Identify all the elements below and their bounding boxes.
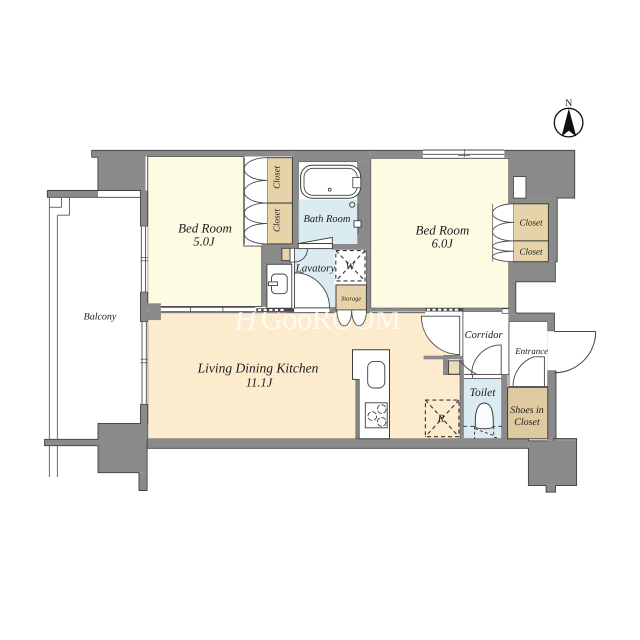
svg-text:Closet: Closet <box>519 218 543 228</box>
svg-text:Corridor: Corridor <box>465 330 504 341</box>
svg-text:Closet: Closet <box>519 246 543 256</box>
svg-text:Bed Room: Bed Room <box>416 223 470 238</box>
svg-text:Shoes in: Shoes in <box>510 405 544 416</box>
svg-text:Toilet: Toilet <box>470 387 497 399</box>
svg-text:11.1J: 11.1J <box>246 376 274 390</box>
svg-text:5.0J: 5.0J <box>193 235 216 249</box>
svg-text:Closet: Closet <box>272 209 282 233</box>
svg-text:R: R <box>437 413 445 425</box>
svg-text:W: W <box>345 261 355 273</box>
svg-text:Storage: Storage <box>341 296 361 303</box>
svg-text:Entrance: Entrance <box>514 346 548 356</box>
svg-text:Bed Room: Bed Room <box>178 221 232 236</box>
svg-text:N: N <box>565 98 572 109</box>
svg-text:6.0J: 6.0J <box>432 236 455 250</box>
svg-text:H: H <box>233 301 259 337</box>
svg-text:Lavatory: Lavatory <box>295 263 336 275</box>
svg-text:Bath Room: Bath Room <box>304 214 351 225</box>
svg-text:Balcony: Balcony <box>84 312 117 323</box>
svg-text:Closet: Closet <box>514 417 540 428</box>
svg-text:Closet: Closet <box>272 165 282 189</box>
svg-text:Living Dining Kitchen: Living Dining Kitchen <box>197 361 319 376</box>
